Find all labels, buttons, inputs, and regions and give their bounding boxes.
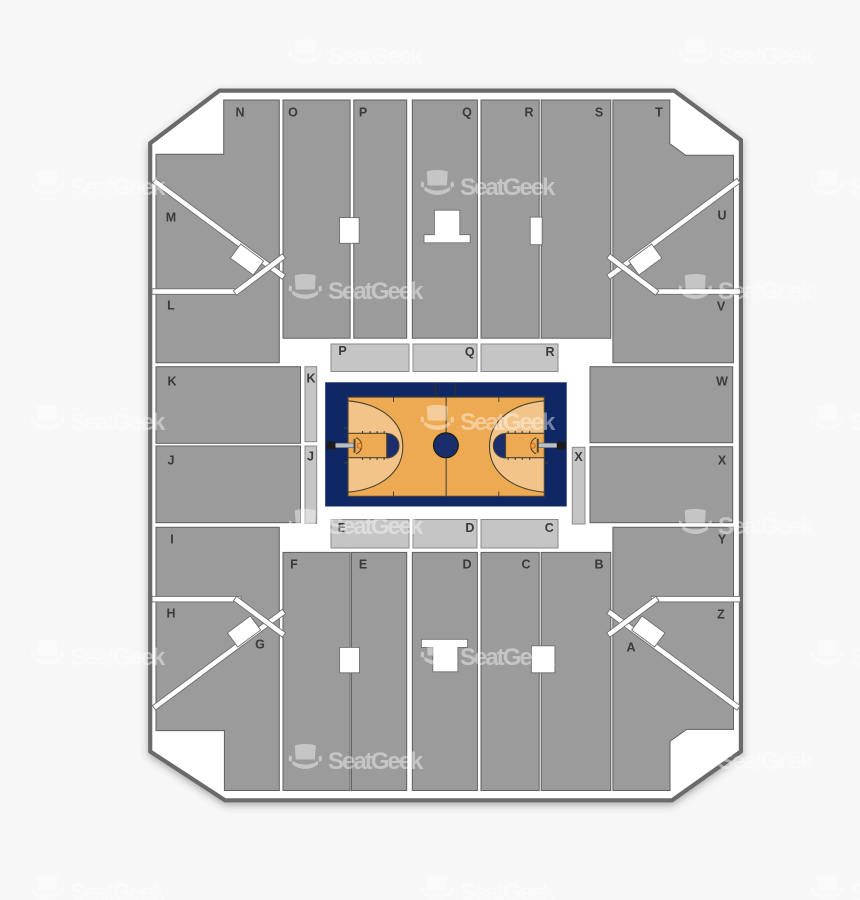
svg-text:SeatGeek: SeatGeek [70,644,166,671]
svg-text:W: W [716,375,728,389]
svg-text:SeatGeek: SeatGeek [460,879,556,900]
svg-text:Z: Z [717,608,725,622]
svg-text:U: U [717,209,726,223]
svg-text:Q: Q [462,106,472,120]
svg-text:Q: Q [465,345,475,359]
svg-text:SeatGeek: SeatGeek [70,879,166,900]
svg-text:I: I [170,533,173,547]
svg-text:K: K [306,372,315,386]
svg-text:D: D [465,521,474,535]
svg-text:SeatGeek: SeatGeek [460,644,556,671]
svg-text:D: D [462,558,471,572]
svg-text:G: G [255,638,265,652]
svg-text:SeatGeek: SeatGeek [850,879,860,900]
svg-text:K: K [167,375,176,389]
svg-text:SeatGeek: SeatGeek [70,174,166,201]
svg-text:SeatGeek: SeatGeek [718,513,814,540]
svg-text:SeatGeek: SeatGeek [328,43,424,70]
svg-text:E: E [359,558,367,572]
svg-text:X: X [574,450,583,464]
svg-text:R: R [545,345,554,359]
svg-text:SeatGeek: SeatGeek [70,409,166,436]
svg-text:X: X [718,454,727,468]
svg-text:A: A [626,641,635,655]
svg-text:SeatGeek: SeatGeek [850,174,860,201]
svg-text:L: L [167,299,175,313]
svg-text:N: N [235,106,244,120]
svg-text:C: C [545,521,554,535]
svg-text:S: S [595,106,603,120]
svg-text:T: T [655,106,663,120]
svg-text:SeatGeek: SeatGeek [460,174,556,201]
svg-text:P: P [359,106,367,120]
svg-text:F: F [290,558,298,572]
svg-text:SeatGeek: SeatGeek [850,409,860,436]
svg-text:SeatGeek: SeatGeek [328,748,424,775]
svg-text:SeatGeek: SeatGeek [718,278,814,305]
svg-text:J: J [307,450,314,464]
svg-text:J: J [168,454,175,468]
svg-text:R: R [524,106,533,120]
svg-text:SeatGeek: SeatGeek [328,513,424,540]
svg-text:C: C [521,558,530,572]
svg-text:M: M [166,211,176,225]
svg-text:O: O [288,106,298,120]
svg-text:SeatGeek: SeatGeek [460,409,556,436]
svg-text:H: H [166,607,175,621]
svg-text:SeatGeek: SeatGeek [718,748,814,775]
svg-text:SeatGeek: SeatGeek [328,278,424,305]
svg-text:SeatGeek: SeatGeek [850,644,860,671]
svg-text:P: P [338,344,346,358]
svg-text:SeatGeek: SeatGeek [718,43,814,70]
svg-text:B: B [594,558,603,572]
